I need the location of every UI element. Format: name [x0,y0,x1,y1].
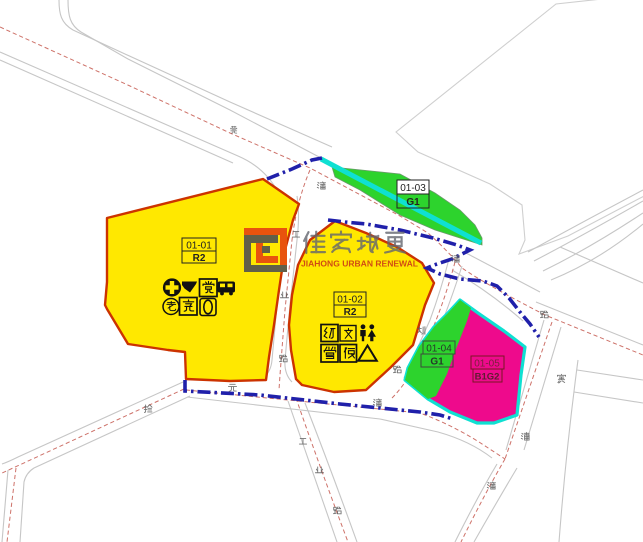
svg-text:G1: G1 [430,357,444,368]
svg-text:01-01: 01-01 [186,241,212,252]
svg-text:01-02: 01-02 [337,295,363,306]
svg-text:R2: R2 [344,307,357,318]
svg-text:01-04: 01-04 [426,344,452,355]
svg-text:R2: R2 [193,253,206,264]
svg-text:G1: G1 [406,197,420,208]
svg-text:01-05: 01-05 [474,359,500,370]
svg-text:JIAHONG URBAN RENEWAL: JIAHONG URBAN RENEWAL [301,259,418,269]
svg-text:B1G2: B1G2 [475,372,500,383]
svg-text:01-03: 01-03 [400,183,426,194]
